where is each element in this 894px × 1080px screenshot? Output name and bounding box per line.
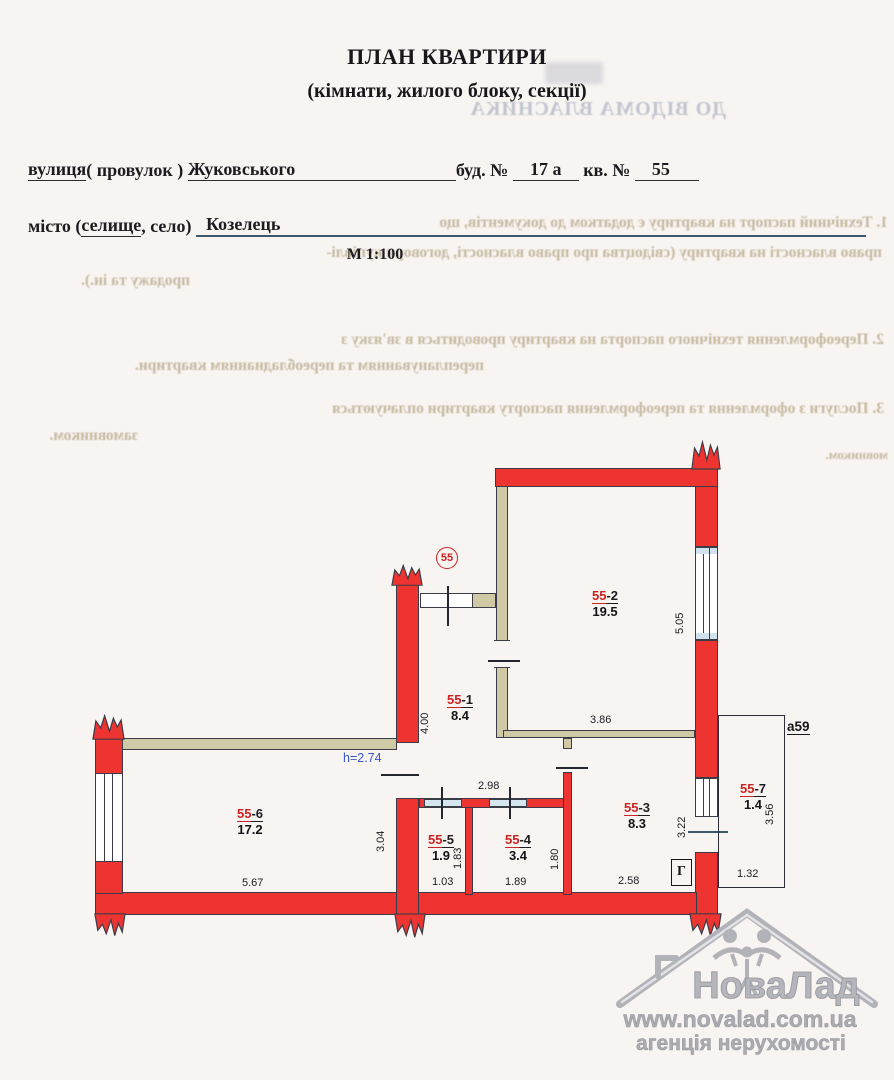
dim-room6-height: 3.04	[375, 810, 387, 852]
partition-room5-room4	[465, 807, 473, 895]
door-gap-room2	[494, 640, 510, 668]
dim-hall-width: 2.98	[478, 780, 499, 792]
room-label-55-4: 55-4 3.4	[496, 833, 540, 863]
wall-break-entrance	[391, 564, 423, 586]
door-gap-room6	[396, 742, 419, 800]
dim-room4-height: 1.80	[549, 830, 561, 870]
dim-room2-height: 5.05	[674, 588, 686, 634]
door-sill-room4	[489, 799, 527, 807]
wall-top	[495, 468, 718, 487]
wall-right-middle	[695, 640, 718, 778]
entrance-door-tick	[447, 586, 449, 626]
dim-balcony-width: 1.32	[737, 868, 758, 880]
room-label-55-6: 55-6 17.2	[222, 807, 278, 837]
wall-break-bottom-left	[94, 913, 126, 939]
door-tick-room2	[488, 660, 520, 662]
dim-room6-width: 5.67	[242, 877, 263, 889]
scanned-floor-plan-page: ДО ВІДОМА ВЛАСНИКА 1. Технічний паспорт …	[0, 0, 894, 1080]
dim-balcony-height: 3.56	[764, 781, 776, 825]
window-room2	[695, 547, 718, 640]
wall-left-upper	[95, 738, 123, 775]
wall-break-top-left	[92, 714, 125, 740]
watermark-name: НоваЛад	[692, 965, 860, 1007]
dim-hall-height: 4.00	[419, 688, 431, 734]
door-tick-room6	[381, 774, 419, 776]
apartment-number-badge: 55	[436, 547, 458, 569]
agency-watermark: НоваЛад www.novalad.com.ua агенція нерух…	[598, 896, 890, 1064]
door-tick-room3	[556, 767, 588, 769]
partition-room3-west	[563, 772, 572, 895]
watermark-url: www.novalad.com.ua	[622, 1006, 856, 1032]
dim-room3-height: 3.22	[676, 796, 688, 838]
window-balcony-side	[695, 778, 718, 817]
gas-marker: Г	[671, 859, 692, 886]
door-sill-room5	[424, 799, 462, 807]
wall-left-lower	[95, 861, 123, 894]
dim-room4-width: 1.89	[505, 876, 526, 888]
ceiling-height-note: h=2.74	[343, 751, 382, 765]
door-tick-room5	[441, 787, 443, 819]
partition-room1-room2	[496, 486, 508, 738]
room-label-55-1: 55-1 8.4	[434, 693, 486, 723]
window-room6	[95, 773, 123, 863]
wall-central-upper	[396, 584, 419, 744]
room-label-55-3: 55-3 8.3	[608, 801, 666, 831]
entrance-stub	[472, 593, 496, 608]
dim-room5-height: 1.83	[452, 831, 464, 869]
partition-stub-room3	[563, 738, 572, 749]
window-sill	[696, 548, 717, 554]
partition-room2-south	[503, 730, 695, 738]
wall-right-upper	[695, 486, 718, 547]
balcony-label: а59	[787, 719, 810, 735]
dim-room3-top-width: 3.86	[590, 714, 611, 726]
room-label-55-2: 55-2 19.5	[572, 589, 638, 619]
watermark-tagline: агенція нерухомості	[636, 1032, 846, 1055]
door-tick-room4	[509, 787, 511, 819]
window-sill	[696, 633, 717, 639]
dim-room5-width: 1.03	[432, 876, 453, 888]
wall-break-top-right	[691, 440, 721, 470]
wall-central-lower	[396, 798, 419, 915]
wall-break-bottom-central	[394, 913, 426, 941]
dim-room3-bottom-width: 2.58	[618, 875, 639, 887]
partition-room6-north	[122, 738, 397, 750]
